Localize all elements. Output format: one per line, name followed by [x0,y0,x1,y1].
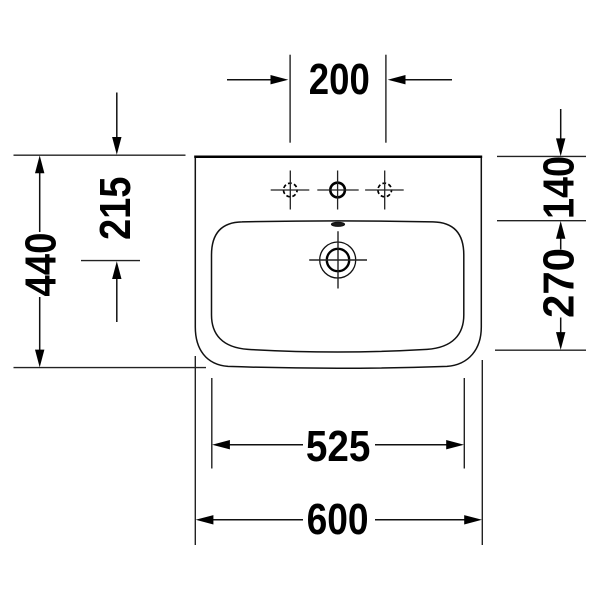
svg-text:140: 140 [536,156,584,219]
svg-text:600: 600 [307,496,369,544]
svg-text:270: 270 [536,248,584,318]
svg-text:215: 215 [92,177,140,241]
svg-text:200: 200 [309,56,370,104]
svg-text:440: 440 [18,233,66,297]
svg-text:525: 525 [306,423,371,471]
